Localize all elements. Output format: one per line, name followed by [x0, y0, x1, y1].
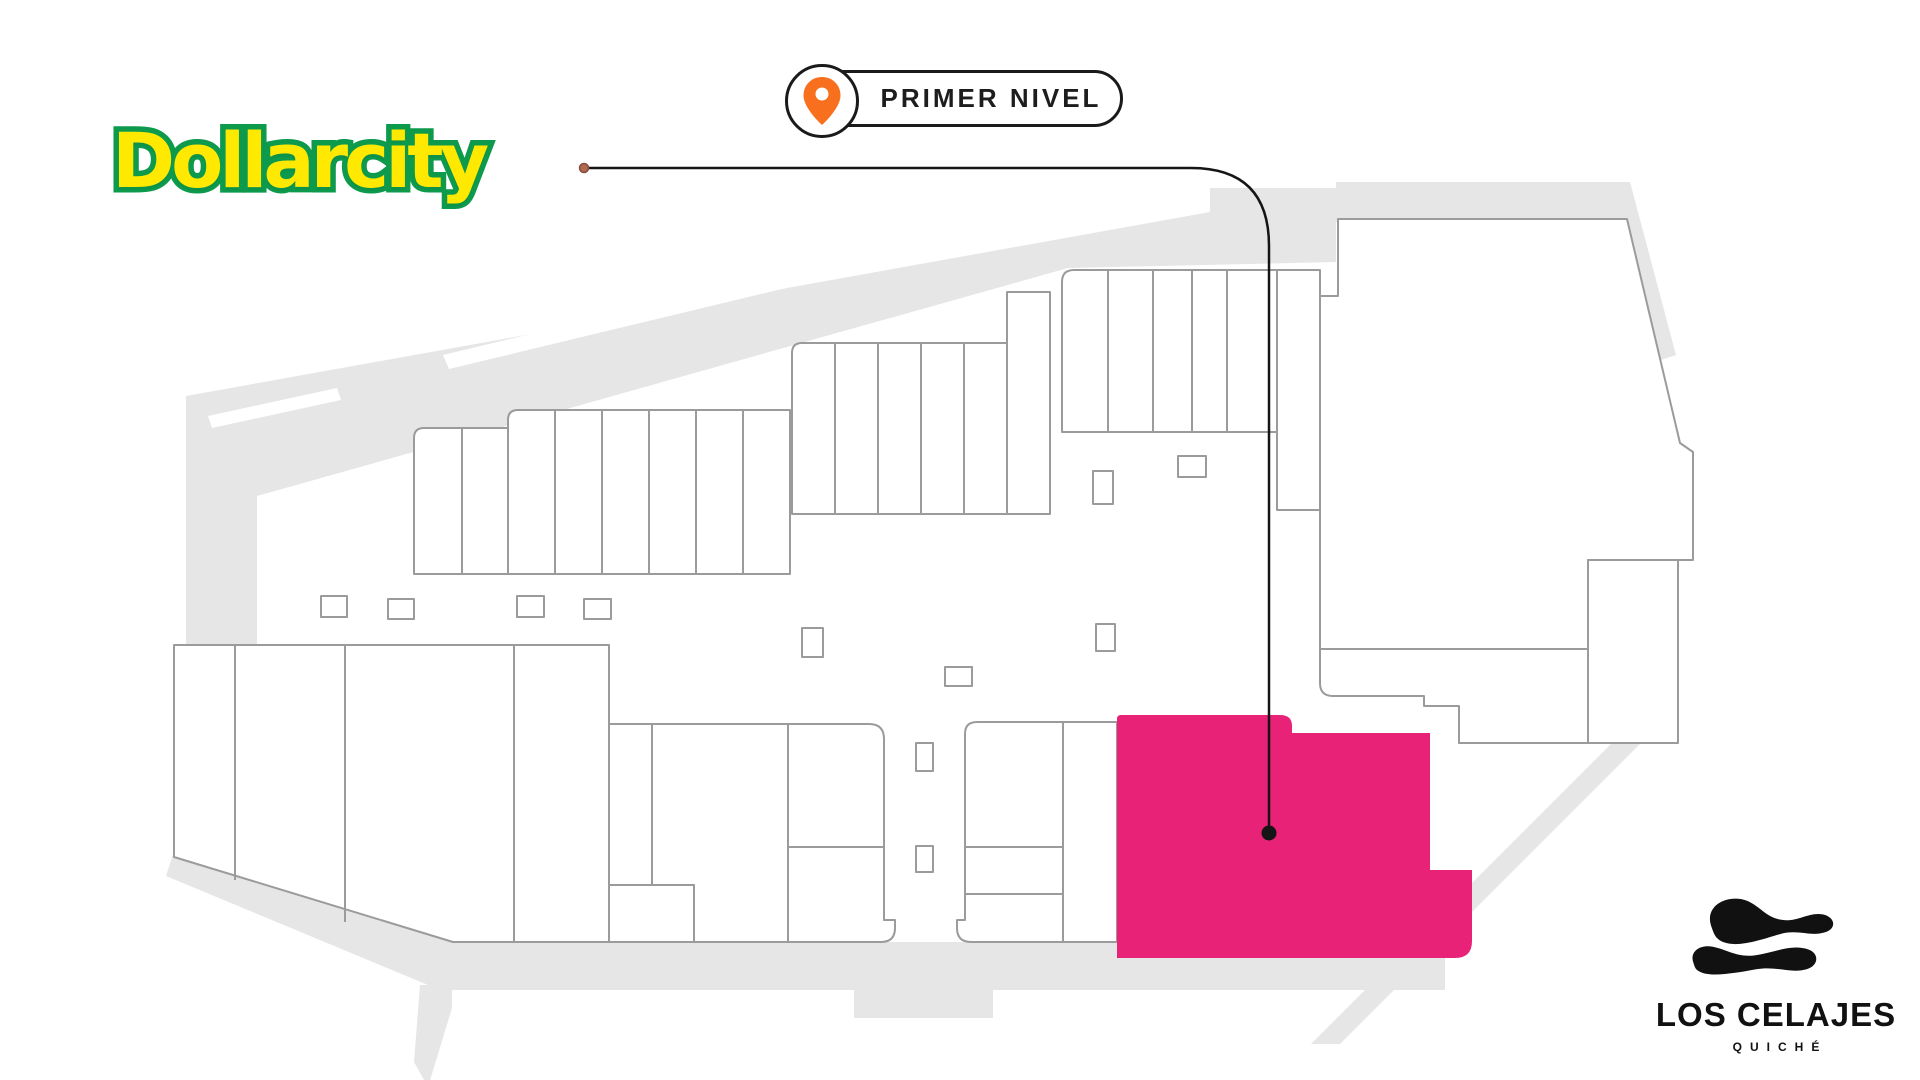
level-badge-label: PRIMER NIVEL	[862, 70, 1120, 127]
store-group-center-right	[957, 722, 1117, 942]
mall-name: LOS CELAJES	[1648, 996, 1904, 1034]
dollarcity-logo: Dollarcity	[112, 116, 485, 205]
mall-directory-page: Dollarcity PRIMER NIVEL LOS CELAJES QUIC…	[0, 0, 1920, 1080]
walkway-left-strip	[186, 470, 257, 647]
store-below-anchor	[1320, 649, 1588, 743]
walkway-bottom-entrance	[854, 988, 993, 1018]
callout-start-dot	[580, 164, 589, 173]
clouds-logo-icon	[1686, 886, 1866, 986]
level-badge-pin-circle	[785, 64, 859, 138]
stall-row-left	[414, 410, 790, 574]
walkway-bottom-left-spur	[414, 985, 452, 1080]
store-right-tall	[1588, 560, 1678, 743]
location-pin-icon	[800, 75, 844, 127]
store-group-center-left	[609, 724, 895, 942]
mall-logo: LOS CELAJES QUICHÉ	[1648, 886, 1904, 1054]
callout-end-dot	[1262, 826, 1277, 841]
store-outlines	[174, 219, 1693, 942]
mall-subtitle: QUICHÉ	[1648, 1040, 1904, 1054]
highlighted-store-dollarcity[interactable]	[1117, 715, 1472, 958]
